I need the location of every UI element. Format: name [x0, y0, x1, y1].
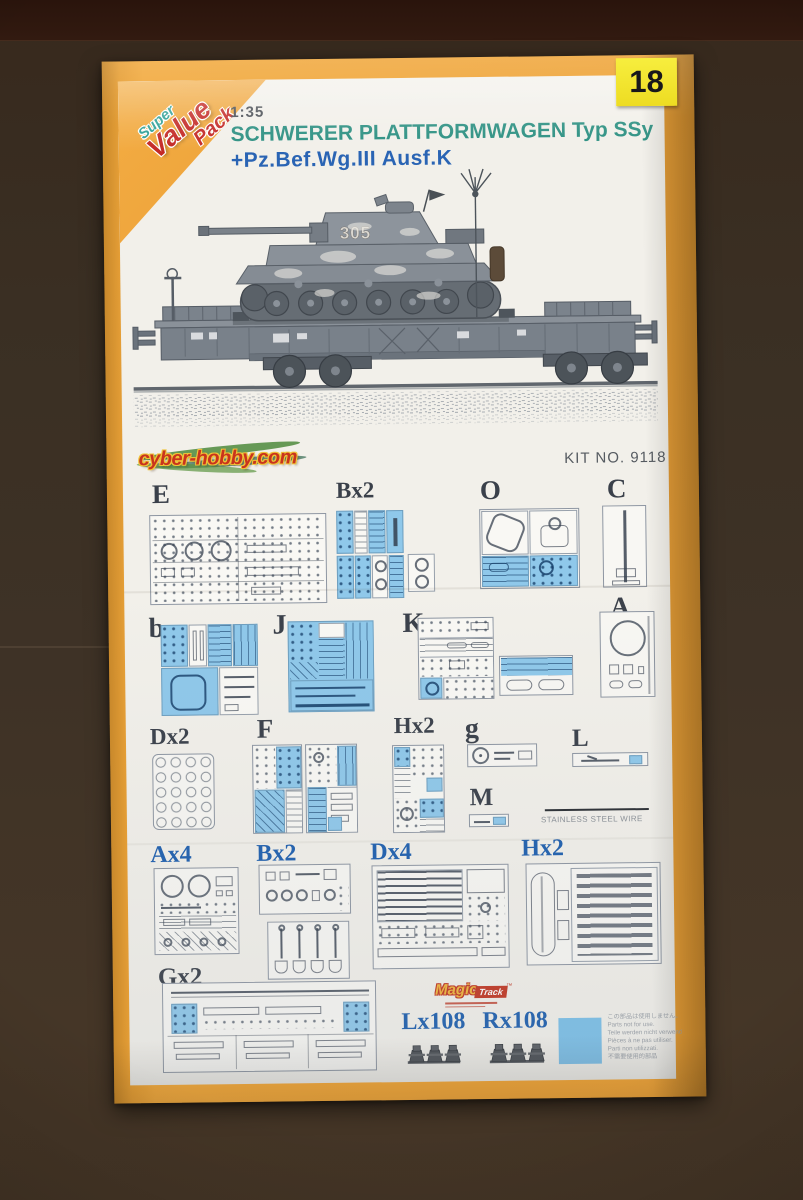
ramp-side-part — [531, 872, 556, 956]
panzer-iii-tank: 305 — [198, 169, 515, 326]
kit-title-block: 1:35 SCHWERER PLATTFORMWAGEN Typ SSy +Pz… — [230, 99, 654, 173]
gun-barrel — [208, 227, 312, 234]
sprue-label-l: L — [572, 726, 589, 751]
sprue-f-panel1 — [252, 744, 303, 834]
grooved-deck-part — [571, 867, 659, 962]
sprue-f-panel2 — [305, 744, 358, 834]
sprue-m — [469, 814, 509, 827]
sprue-g — [467, 743, 537, 767]
sprue-a — [599, 611, 655, 698]
sprue-attachment — [408, 554, 435, 592]
sticker-number: 18 — [629, 64, 664, 100]
sprue-label-dx2: Dx2 — [150, 725, 190, 748]
sprue-j — [288, 620, 375, 712]
sprue-hx2-gray — [392, 745, 445, 834]
kit-title-line1: SCHWERER PLATTFORMWAGEN Typ SSy — [230, 118, 653, 147]
sprue-label-e: E — [152, 481, 170, 508]
long-beam-part — [171, 989, 369, 993]
not-for-use-text-block: この部品は使用しません。 Parts not for use. Teile we… — [607, 1013, 682, 1061]
part-drawing — [161, 543, 178, 560]
sprue-bx2-blue-bottom — [267, 921, 350, 980]
sprue-label-f: F — [257, 716, 274, 743]
cyber-hobby-wordmark: cyber-hobby.com — [138, 446, 297, 471]
stainless-wire-sample — [545, 808, 649, 811]
sprue-k-attachment — [499, 655, 573, 696]
sprue-gx2 — [162, 980, 377, 1073]
kit-number: KIT NO. 9118 — [564, 449, 667, 467]
nfu-line-chinese: 不需要使用的部品 — [608, 1052, 682, 1061]
sprue-o — [479, 508, 580, 589]
deck-plank-part — [377, 869, 464, 922]
sprue-k — [417, 617, 494, 700]
sprue-label-o: O — [480, 477, 501, 504]
track-left-label: Lx108 — [401, 1009, 465, 1034]
logo-subtext-line — [445, 1006, 485, 1008]
nfu-line-french: Pièces à ne pas utiliser. — [608, 1036, 682, 1045]
sprue-label-ax4: Ax4 — [150, 843, 192, 868]
sprue-label-dx4: Dx4 — [370, 840, 412, 865]
logo-subtext-line — [445, 1002, 497, 1004]
sprue-bx2-blue-top — [258, 864, 351, 915]
cyber-hobby-logo: cyber-hobby.com — [136, 441, 326, 477]
sprue-dx4 — [371, 864, 509, 970]
rail-wheel-part — [161, 875, 184, 898]
tank-on-flatcar-illustration: 305 — [127, 163, 662, 431]
sprue-label-c: C — [607, 475, 627, 502]
turret-pennant — [429, 189, 445, 200]
sprue-label-bx2-blue: Bx2 — [256, 841, 296, 865]
sprue-label-hx2-gray: Hx2 — [394, 714, 435, 737]
inventory-number-sticker: 18 — [616, 58, 677, 107]
turret-ring-part — [483, 511, 527, 555]
sheet-white-area: Super Value Pack 1:35 SCHWERER PLATTFORM… — [118, 75, 676, 1086]
track-links-right-icon — [489, 1038, 547, 1067]
sprue-hx2-blue — [525, 862, 661, 966]
photo-of-kit-instruction-sheet: { "scene": { "sticker_number": "18" }, "… — [0, 0, 803, 1200]
tank-turret — [316, 212, 438, 245]
turret-race-part — [610, 620, 646, 656]
magic-track-wordmark: Magic — [435, 981, 478, 999]
magic-track-box: Track — [474, 986, 507, 998]
track-right-label: Rx108 — [482, 1008, 548, 1033]
instruction-sheet: Super Value Pack 1:35 SCHWERER PLATTFORM… — [102, 54, 707, 1103]
sprue-l — [572, 752, 648, 767]
sprue-dx2 — [152, 753, 215, 830]
track-links-left-icon — [407, 1039, 463, 1068]
sprue-label-g: g — [465, 715, 479, 743]
sprue-label-bx2-gray: Bx2 — [336, 478, 375, 501]
sprue-label-j: J — [272, 611, 286, 639]
background-top-band — [0, 0, 803, 41]
sprue-label-m: M — [470, 785, 494, 810]
sprue-ax4 — [154, 867, 240, 955]
table-scratch-mark — [0, 646, 112, 648]
stainless-wire-label: STAINLESS STEEL WIRE — [541, 814, 653, 824]
sprue-c — [602, 505, 647, 588]
not-for-use-color-swatch — [558, 1018, 602, 1065]
sprue-b — [161, 624, 259, 716]
